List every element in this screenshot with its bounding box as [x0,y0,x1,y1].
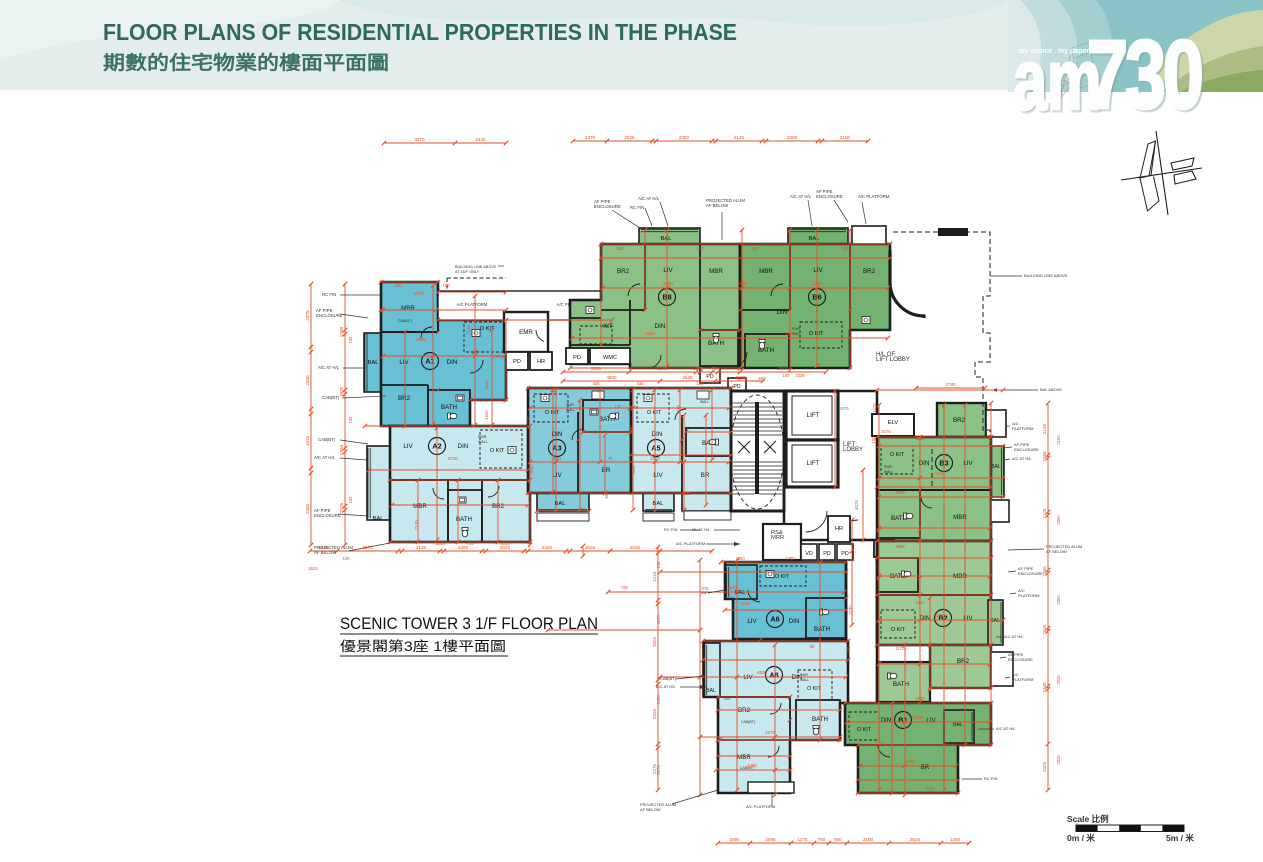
svg-text:1520: 1520 [727,585,737,590]
svg-text:BATH: BATH [814,626,830,633]
svg-text:PD: PD [733,384,740,390]
svg-text:0m / 米: 0m / 米 [1067,833,1095,843]
svg-text:MBR: MBR [737,754,751,761]
svg-text:CAB(BT): CAB(BT) [322,395,340,400]
svg-text:LOBBY: LOBBY [843,447,863,453]
svg-text:A/C AT H/L: A/C AT H/L [1012,456,1032,461]
svg-text:3000: 3000 [591,366,602,371]
svg-text:2270: 2270 [765,730,775,735]
svg-text:1750: 1750 [785,556,795,561]
svg-text:1175: 1175 [798,837,808,842]
svg-text:2325: 2325 [1056,755,1061,765]
svg-text:750: 750 [711,366,719,371]
svg-text:1520: 1520 [740,601,750,606]
svg-text:DIN: DIN [458,443,469,450]
svg-text:2125: 2125 [1042,508,1047,519]
svg-text:2350: 2350 [339,444,344,455]
svg-text:A/C AT H/L: A/C AT H/L [638,196,660,201]
svg-text:FIN: FIN [724,697,730,701]
svg-text:750: 750 [818,837,826,842]
svg-text:期數的住宅物業的樓面平面圖: 期數的住宅物業的樓面平面圖 [103,51,389,74]
svg-text:2350: 2350 [305,375,310,386]
svg-text:PD: PD [513,359,521,365]
svg-text:CAB(BT): CAB(BT) [398,319,412,323]
svg-text:CAB(BT): CAB(BT) [660,676,677,681]
svg-text:ELV: ELV [888,420,899,426]
svg-text:BATH: BATH [893,681,909,688]
svg-text:ML AT H/L: ML AT H/L [692,527,711,532]
svg-text:A/C AT H/L: A/C AT H/L [656,684,676,689]
svg-text:150: 150 [615,404,623,409]
svg-text:LIFT LOBBY: LIFT LOBBY [876,357,910,363]
svg-text:1848: 1848 [435,541,445,546]
svg-text:100: 100 [783,373,791,378]
svg-text:1190: 1190 [645,331,655,336]
svg-text:150: 150 [752,246,760,251]
svg-text:5m / 米: 5m / 米 [1166,833,1194,843]
svg-text:3080: 3080 [895,490,905,495]
svg-text:BAL: BAL [990,618,1000,624]
svg-text:PWR: PWR [800,673,808,677]
svg-text:O KIT: O KIT [490,448,505,454]
svg-text:ENCLOSURE: ENCLOSURE [1018,571,1043,576]
svg-text:3070: 3070 [414,291,424,296]
svg-text:2300: 2300 [813,281,823,286]
svg-text:O KIT: O KIT [809,331,824,337]
svg-text:A/C AT H/L: A/C AT H/L [790,194,812,199]
svg-text:ENCLOSURE: ENCLOSURE [316,313,343,318]
svg-text:725: 725 [620,585,628,590]
svg-text:LIV: LIV [813,267,823,274]
svg-text:ENCLOSURE: ENCLOSURE [594,204,621,209]
svg-text:1925: 1925 [656,615,661,625]
svg-text:RC FIN: RC FIN [984,776,997,781]
svg-text:2025: 2025 [585,545,596,550]
svg-text:FLOOR PLANS OF RESIDENTIAL PRO: FLOOR PLANS OF RESIDENTIAL PROPERTIES IN… [103,19,737,45]
svg-text:AF BELOW: AF BELOW [706,203,729,208]
svg-text:1215: 1215 [652,571,657,582]
svg-text:430: 430 [577,406,585,411]
svg-text:RC FIN: RC FIN [630,205,644,210]
svg-text:2350: 2350 [935,613,945,618]
svg-text:CAB(BT): CAB(BT) [741,720,755,724]
svg-text:900: 900 [834,837,842,842]
svg-text:1590: 1590 [729,837,740,842]
svg-text:O KIT: O KIT [545,410,560,416]
svg-text:2475: 2475 [905,759,915,764]
svg-text:DIN: DIN [777,309,788,316]
svg-text:4800: 4800 [606,375,617,380]
svg-text:BR2: BR2 [617,268,630,275]
svg-text:2225: 2225 [795,373,805,378]
svg-text:BR: BR [701,472,710,479]
svg-text:PWR: PWR [884,465,892,469]
svg-text:EMR: EMR [519,329,533,336]
svg-text:A5: A5 [651,444,660,453]
svg-text:2360: 2360 [679,135,690,140]
svg-text:HR: HR [537,359,545,365]
svg-text:150: 150 [871,436,876,444]
svg-text:DIN: DIN [789,618,800,625]
svg-text:1375: 1375 [585,135,596,140]
svg-text:2350: 2350 [305,503,310,514]
svg-text:MBR: MBR [709,268,723,275]
svg-text:1550: 1550 [735,556,745,561]
svg-text:2441: 2441 [915,600,925,605]
svg-text:2510: 2510 [529,465,534,475]
svg-text:3945: 3945 [416,337,426,342]
svg-text:A/C PLATFORM: A/C PLATFORM [746,804,775,809]
svg-text:1825: 1825 [680,445,685,455]
svg-text:2300: 2300 [1056,595,1061,605]
svg-text:LIV: LIV [663,267,673,274]
svg-text:50: 50 [810,644,815,649]
svg-text:TAP: TAP [700,590,708,595]
svg-text:150: 150 [697,381,705,386]
svg-text:PLATFORM: PLATFORM [1012,677,1033,682]
svg-text:3370: 3370 [414,137,425,142]
svg-text:WALL: WALL [566,408,575,412]
svg-text:730: 730 [1087,21,1201,129]
svg-text:BUILDING LINE ABOVE: BUILDING LINE ABOVE [455,265,497,269]
svg-text:AF BELOW: AF BELOW [1046,549,1067,554]
svg-text:1925: 1925 [652,636,657,647]
svg-text:100: 100 [348,416,353,424]
svg-text:2350: 2350 [1042,451,1047,462]
svg-text:2150: 2150 [840,135,851,140]
svg-text:MBR: MBR [759,268,773,275]
svg-text:O KIT: O KIT [891,627,906,633]
svg-text:WALL: WALL [800,678,809,682]
svg-text:6720: 6720 [448,456,458,461]
svg-text:2350: 2350 [1056,515,1061,525]
svg-text:LIV: LIV [552,472,562,479]
svg-text:PWR: PWR [566,403,574,407]
svg-text:LIV: LIV [403,443,413,450]
svg-text:2025: 2025 [1056,675,1061,685]
svg-text:O KIT: O KIT [890,452,905,458]
svg-text:BR2: BR2 [738,707,751,714]
svg-text:1600: 1600 [484,380,489,390]
svg-text:PLATFORM: PLATFORM [1018,593,1039,598]
svg-text:2300: 2300 [542,545,553,550]
svg-text:RC FIN: RC FIN [322,292,336,297]
svg-text:BAL ABOVE: BAL ABOVE [1040,387,1062,392]
svg-text:DIN: DIN [655,323,666,330]
svg-text:2030: 2030 [500,541,510,546]
svg-text:A/C AT H/L: A/C AT H/L [1004,634,1024,639]
svg-text:2135: 2135 [466,325,471,335]
svg-text:WALL: WALL [884,470,893,474]
svg-text:1100: 1100 [631,465,636,475]
svg-text:1770: 1770 [875,741,885,746]
svg-text:PD: PD [823,551,831,557]
svg-text:100: 100 [443,283,451,288]
svg-text:2100: 2100 [915,696,925,701]
svg-text:2425: 2425 [656,695,661,705]
svg-text:3800: 3800 [778,366,789,371]
svg-text:LIV: LIV [926,717,936,724]
svg-text:BATH: BATH [441,404,457,411]
svg-text:2300: 2300 [650,456,660,461]
svg-text:O KIT: O KIT [857,727,872,733]
svg-text:150: 150 [656,561,661,569]
svg-text:BAL: BAL [653,501,665,507]
svg-text:100: 100 [343,556,351,561]
svg-text:2550: 2550 [915,436,925,441]
svg-text:PD: PD [573,355,581,361]
svg-text:O KIT: O KIT [775,574,790,580]
svg-text:KIT: KIT [603,323,613,330]
svg-text:BR2: BR2 [953,417,966,424]
svg-text:2100: 2100 [913,715,923,720]
svg-text:ENCLOSURE: ENCLOSURE [816,194,843,199]
svg-text:2375: 2375 [305,310,310,321]
svg-text:2100: 2100 [1056,435,1061,445]
svg-text:MRR: MRR [771,535,784,541]
svg-text:DIN: DIN [881,717,892,724]
svg-text:BAL: BAL [661,236,673,242]
svg-text:ENCLOSURE: ENCLOSURE [1008,657,1033,662]
svg-text:1975: 1975 [339,386,344,397]
svg-text:ENCLOSURE: ENCLOSURE [314,513,341,518]
svg-text:2100: 2100 [1042,423,1047,434]
svg-text:A/C PLATFORM: A/C PLATFORM [858,194,890,199]
svg-text:150: 150 [395,283,403,288]
svg-text:BUILDING LINE ABOVE: BUILDING LINE ABOVE [1024,273,1068,278]
svg-text:2300: 2300 [1042,682,1047,693]
svg-text:1975: 1975 [305,435,310,446]
svg-text:BAL: BAL [373,516,385,522]
svg-text:100: 100 [697,246,705,251]
svg-text:ENCLOSURE: ENCLOSURE [1014,447,1039,452]
svg-text:優景閣第3座 1樓平面圖: 優景閣第3座 1樓平面圖 [340,638,506,654]
svg-text:VD: VD [805,551,813,557]
svg-text:3080: 3080 [895,544,905,549]
svg-text:PWR: PWR [478,435,487,439]
svg-text:O KIT: O KIT [807,686,822,692]
svg-text:WMC: WMC [603,355,617,361]
svg-text:2425: 2425 [652,708,657,719]
svg-text:4025: 4025 [854,500,859,510]
svg-text:A/C AT H/L: A/C AT H/L [996,726,1016,731]
svg-text:A/C AT H/L: A/C AT H/L [318,365,340,370]
svg-text:AF BELOW: AF BELOW [640,807,661,812]
svg-text:1400: 1400 [950,837,961,842]
svg-text:2275: 2275 [656,765,661,775]
svg-text:Scale 比例: Scale 比例 [1067,814,1109,824]
svg-text:650: 650 [604,491,609,499]
svg-text:2100: 2100 [863,837,874,842]
svg-text:BAL: BAL [953,722,963,728]
svg-text:DIN: DIN [652,431,663,438]
svg-text:2125: 2125 [734,135,745,140]
svg-text:2780: 2780 [945,382,956,387]
svg-text:LIV: LIV [743,674,753,681]
svg-text:BAL: BAL [991,464,1001,470]
svg-text:430: 430 [637,381,645,386]
svg-text:4795: 4795 [629,425,634,435]
svg-text:2135: 2135 [414,520,419,530]
svg-text:2430: 2430 [475,137,486,142]
svg-text:2350: 2350 [339,326,344,337]
svg-text:A/C AT H/L: A/C AT H/L [314,455,336,460]
svg-text:1275: 1275 [693,366,704,371]
svg-text:MBR: MBR [413,503,427,510]
svg-text:BR: BR [602,467,611,474]
svg-text:WALL: WALL [478,440,488,444]
svg-text:1075: 1075 [676,405,681,415]
svg-text:1125: 1125 [681,491,691,496]
svg-text:1600: 1600 [484,410,489,420]
svg-text:150: 150 [526,416,531,424]
svg-text:1275: 1275 [737,376,747,381]
svg-text:150: 150 [842,246,850,251]
svg-text:A3: A3 [552,444,561,453]
svg-text:A6: A6 [770,615,779,624]
svg-text:2025: 2025 [339,502,344,513]
svg-text:LIFT: LIFT [807,412,820,419]
svg-text:3730: 3730 [848,605,853,615]
svg-text:755: 755 [467,541,475,546]
svg-text:2300: 2300 [787,135,798,140]
svg-text:PD: PD [841,551,849,557]
svg-text:150: 150 [348,496,353,504]
svg-text:2325: 2325 [1042,761,1047,772]
svg-text:BR2: BR2 [398,395,411,402]
svg-text:MBR: MBR [401,305,415,312]
svg-text:2300: 2300 [663,281,673,286]
svg-text:CAB(BT): CAB(BT) [318,437,336,442]
svg-text:1280: 1280 [747,763,757,768]
svg-text:PD: PD [706,374,713,380]
svg-text:AT 16/F ONLY: AT 16/F ONLY [455,270,480,274]
svg-text:2025: 2025 [1042,624,1047,635]
svg-text:1625: 1625 [872,403,877,413]
svg-text:2625: 2625 [682,375,693,380]
svg-text:2475: 2475 [925,786,935,791]
svg-text:BAL: BAL [706,688,716,694]
svg-text:O KIT: O KIT [647,410,662,416]
svg-text:LIV: LIV [399,359,409,366]
svg-text:400: 400 [846,646,851,654]
svg-text:2525: 2525 [630,545,641,550]
svg-text:DIN: DIN [447,359,458,366]
svg-text:BR: BR [921,764,930,771]
svg-text:A/C PLATFORM: A/C PLATFORM [457,302,488,307]
svg-text:RC FIN: RC FIN [664,527,677,532]
svg-text:A/C PLATFORM: A/C PLATFORM [676,541,705,546]
svg-text:2055: 2055 [765,837,776,842]
svg-text:AF BELOW: AF BELOW [314,550,337,555]
svg-text:4830: 4830 [757,670,767,675]
svg-text:HR: HR [835,526,843,532]
svg-text:2475: 2475 [839,406,849,411]
svg-text:950: 950 [759,376,767,381]
svg-text:LIFT: LIFT [807,460,820,467]
svg-text:BAL: BAL [809,236,821,242]
svg-text:PLATFORM: PLATFORM [1012,426,1033,431]
svg-text:BR2: BR2 [863,268,876,275]
svg-text:150: 150 [348,336,353,344]
svg-text:LIV: LIV [747,618,757,625]
svg-text:A8: A8 [769,671,778,680]
svg-text:2025: 2025 [624,135,635,140]
svg-text:150: 150 [617,246,625,251]
svg-text:1170: 1170 [895,646,905,651]
svg-text:425: 425 [593,381,601,386]
svg-text:2125: 2125 [416,545,427,550]
svg-text:WALL: WALL [700,400,709,404]
svg-text:75: 75 [608,456,613,461]
svg-text:1525: 1525 [308,566,318,571]
svg-text:200: 200 [494,354,502,359]
svg-text:3475: 3475 [881,429,891,434]
svg-text:2625: 2625 [910,837,921,842]
svg-text:2730: 2730 [935,471,945,476]
svg-text:BAL: BAL [368,360,380,366]
